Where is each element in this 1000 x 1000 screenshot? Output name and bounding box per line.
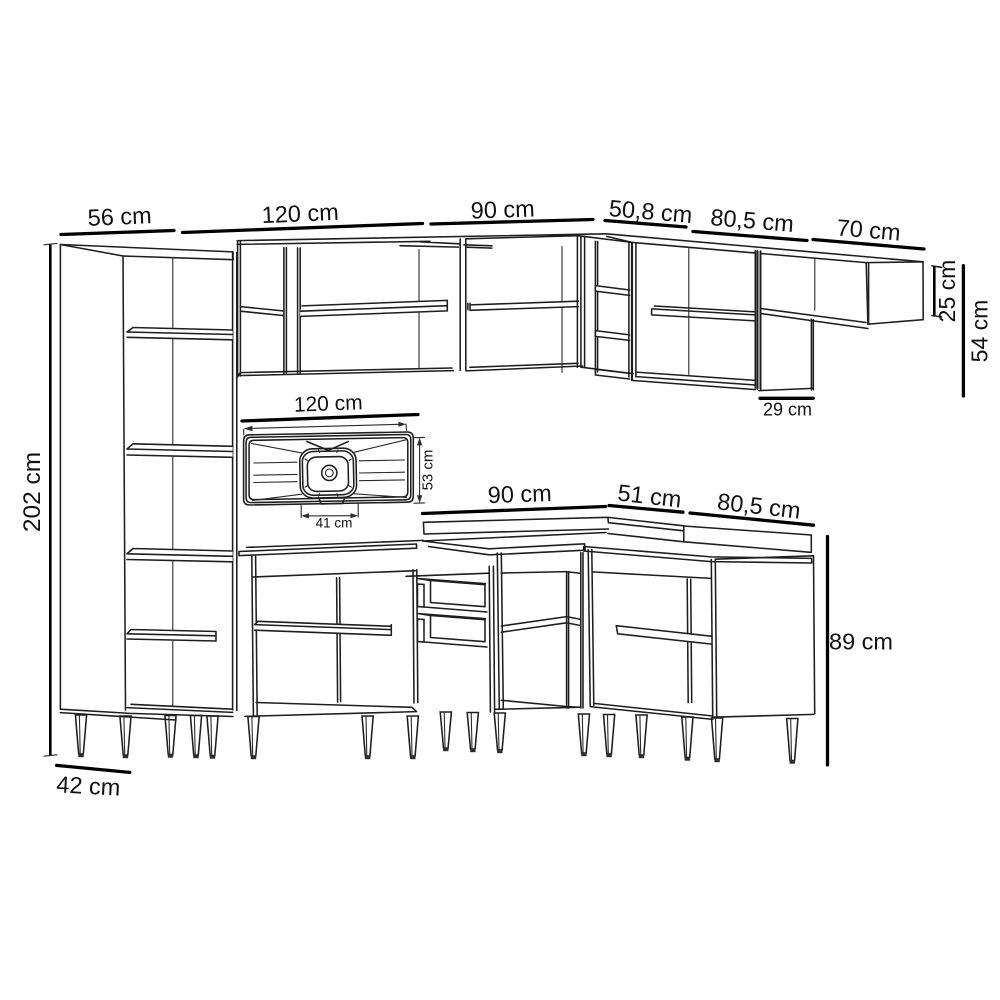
svg-text:202 cm: 202 cm: [19, 452, 46, 532]
svg-text:41 cm: 41 cm: [316, 516, 353, 531]
svg-text:25 cm: 25 cm: [934, 260, 960, 323]
svg-text:29 cm: 29 cm: [763, 400, 812, 420]
svg-text:54 cm: 54 cm: [967, 300, 993, 363]
svg-text:42 cm: 42 cm: [56, 771, 121, 800]
svg-text:70 cm: 70 cm: [836, 214, 902, 245]
svg-text:56 cm: 56 cm: [87, 202, 152, 231]
svg-text:90 cm: 90 cm: [487, 480, 552, 508]
svg-text:89 cm: 89 cm: [829, 629, 893, 655]
svg-text:53 cm: 53 cm: [420, 450, 437, 491]
svg-text:90 cm: 90 cm: [470, 195, 535, 223]
svg-text:120 cm: 120 cm: [261, 199, 339, 228]
svg-text:120 cm: 120 cm: [293, 391, 363, 416]
